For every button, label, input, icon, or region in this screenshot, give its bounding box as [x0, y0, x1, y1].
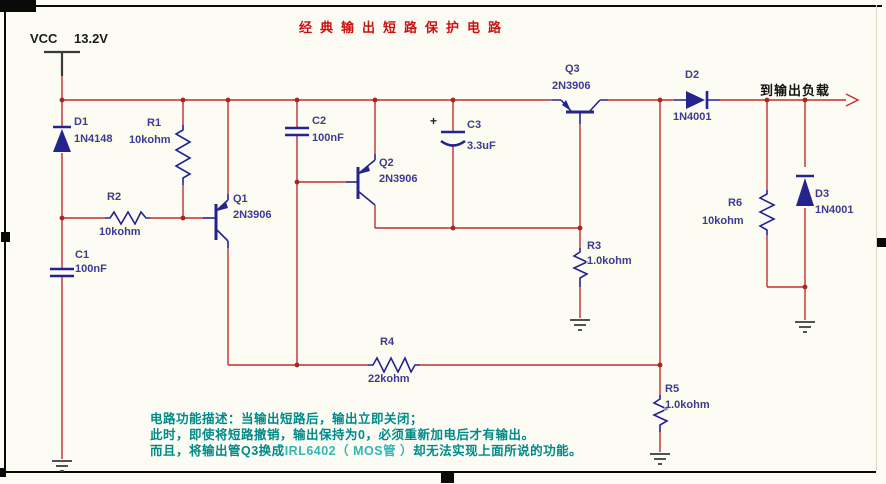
label-r2-ref: R2 — [106, 191, 122, 203]
label-r6-value: 10kohm — [701, 215, 745, 227]
label-r1-ref: R1 — [146, 117, 162, 129]
label-q3-value: 2N3906 — [551, 80, 592, 92]
q1-collector-lead — [216, 229, 228, 248]
d2-triangle — [686, 91, 705, 109]
junction-dot — [181, 216, 186, 221]
d3-triangle — [796, 178, 814, 206]
capacitor-c1-symbol — [50, 269, 74, 276]
label-c3-polarity: + — [430, 114, 437, 128]
label-d3-ref: D3 — [814, 188, 830, 200]
vcc-net-label: VCC — [30, 31, 57, 46]
capacitor-c2-symbol — [285, 128, 309, 135]
label-q3-ref: Q3 — [564, 63, 581, 75]
schematic-title: 经典输出短路保护电路 — [299, 17, 509, 36]
resistor-r4-symbol — [368, 358, 420, 372]
label-r2-value: 10kohm — [98, 226, 142, 238]
label-r1-value: 10kohm — [128, 134, 172, 146]
ground-icon-d3 — [795, 322, 815, 332]
ground-icon-c1 — [52, 461, 72, 471]
label-c1-value: 100nF — [74, 263, 108, 275]
q3-collector-lead — [589, 100, 608, 112]
label-r3-value: 1.0kohm — [586, 255, 633, 267]
junction-dot — [295, 98, 300, 103]
resistor-r3-symbol — [574, 248, 587, 287]
junction-dot — [803, 285, 808, 290]
label-c3-value: 3.3uF — [466, 140, 497, 152]
junction-dot — [451, 226, 456, 231]
transistor-q2-symbol — [346, 154, 375, 205]
label-d2-ref: D2 — [684, 69, 700, 81]
resistor-r6-symbol — [760, 190, 774, 235]
diode-d3-symbol — [796, 176, 814, 206]
label-q1-value: 2N3906 — [232, 209, 273, 221]
wires-layer — [62, 76, 858, 459]
label-q2-value: 2N3906 — [378, 173, 419, 185]
junction-dot — [451, 98, 456, 103]
junction-dot — [181, 98, 186, 103]
diode-d1-symbol — [53, 127, 71, 152]
label-q2-ref: Q2 — [378, 157, 395, 169]
junction-dot — [226, 98, 231, 103]
junction-dot — [60, 216, 65, 221]
junction-dot — [578, 226, 583, 231]
description-line-3-highlight: IRL6402（ MOS管 ） — [285, 444, 413, 458]
circuit-drawing — [0, 0, 886, 484]
junction-dot — [295, 180, 300, 185]
junction-dots-layer — [60, 98, 808, 368]
label-c2-ref: C2 — [311, 115, 327, 127]
schematic-canvas: 经典输出短路保护电路 VCC 13.2V 到输出负载 D1 1N4148 R1 … — [0, 0, 886, 484]
ground-icon-r5 — [650, 454, 670, 464]
output-load-label: 到输出负载 — [760, 80, 830, 99]
label-r6-ref: R6 — [727, 197, 743, 209]
resistor-r2-symbol — [105, 212, 150, 224]
output-arrow-icon — [846, 94, 858, 106]
ground-icon-r3 — [570, 320, 590, 330]
label-d1-value: 1N4148 — [73, 133, 114, 145]
vcc-symbol-icon — [44, 52, 80, 76]
label-d3-value: 1N4001 — [814, 204, 855, 216]
label-r4-ref: R4 — [379, 336, 395, 348]
label-c1-ref: C1 — [74, 249, 90, 261]
transistor-q3-symbol — [552, 100, 608, 124]
q2-collector-lead — [358, 191, 375, 205]
q3-emitter-lead — [552, 100, 572, 112]
description-line-3-post: 却无法实现上面所说的功能。 — [413, 444, 582, 458]
junction-dot — [295, 363, 300, 368]
junction-dot — [658, 363, 663, 368]
label-d2-value: 1N4001 — [672, 111, 713, 123]
label-r4-value: 22kohm — [367, 373, 411, 385]
diode-d2-symbol — [674, 91, 720, 109]
junction-dot — [373, 98, 378, 103]
label-r3-ref: R3 — [586, 240, 602, 252]
diodes-layer — [53, 91, 814, 206]
label-r5-ref: R5 — [664, 383, 680, 395]
transistor-q1-symbol — [203, 194, 228, 248]
q1-pnp-arrow-icon — [217, 202, 228, 211]
label-c3-ref: C3 — [466, 119, 482, 131]
vcc-voltage-label: 13.2V — [74, 31, 108, 46]
d1-triangle — [53, 129, 71, 152]
capacitor-c3-symbol — [441, 132, 465, 146]
junction-dot — [658, 98, 663, 103]
junction-dot — [60, 98, 65, 103]
label-q1-ref: Q1 — [232, 193, 249, 205]
label-c2-value: 100nF — [311, 132, 345, 144]
label-d1-ref: D1 — [73, 116, 89, 128]
q2-pnp-arrow-icon — [359, 165, 370, 174]
label-r5-value: 1.0kohm — [664, 399, 711, 411]
description-line-3: 而且，将输出管Q3换成IRL6402（ MOS管 ）却无法实现上面所说的功能。 — [150, 440, 582, 459]
description-line-3-pre: 而且，将输出管Q3换成 — [150, 444, 285, 458]
resistor-r1-symbol — [176, 125, 190, 185]
